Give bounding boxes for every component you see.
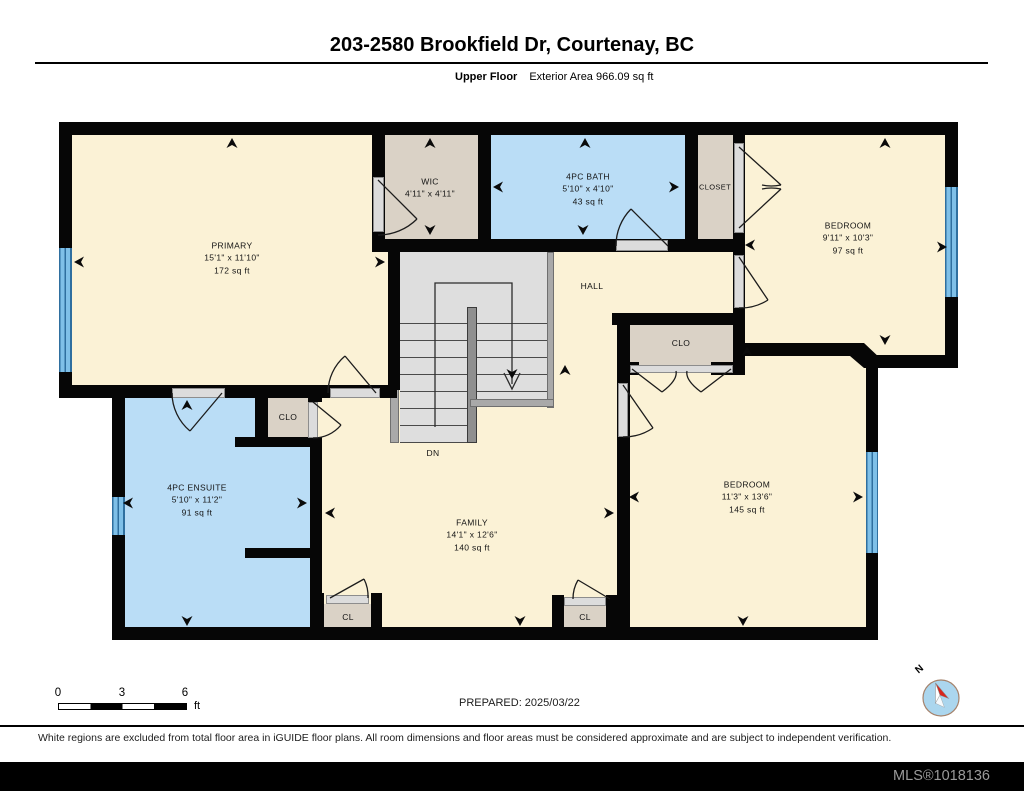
stair-landing — [400, 252, 548, 307]
floor-subtitle: Upper Floor Exterior Area 966.09 sq ft — [455, 71, 653, 83]
door-jamb-ensuite — [172, 388, 225, 398]
stairs-dn-label: DN — [427, 447, 440, 459]
door-jamb-clo-small — [308, 402, 318, 438]
window-bedroom-top — [945, 187, 958, 297]
wall-bedroom-top-divider — [733, 343, 858, 356]
wall-clo-small-bottom — [235, 437, 322, 447]
room-label-cl-right: CL — [579, 611, 591, 623]
scale-unit: ft — [194, 700, 200, 712]
wall-cl-right-b — [606, 595, 618, 640]
stair-rail-bottom — [470, 399, 554, 407]
compass-icon — [921, 678, 961, 718]
wall-wic-bath — [478, 135, 491, 252]
wall-cl-left-b — [371, 593, 382, 640]
room-label-bedroom-top: BEDROOM 9'11" x 10'3" 97 sq ft — [823, 220, 874, 257]
door-jamb-cl-right — [564, 597, 606, 606]
room-label-family: FAMILY 14'1" x 12'6" 140 sq ft — [446, 517, 497, 554]
exterior-area-label: Exterior Area 966.09 sq ft — [529, 71, 653, 83]
scale-bar — [58, 703, 187, 710]
prepared-date: PREPARED: 2025/03/22 — [459, 697, 580, 709]
wall-bath-closet — [685, 135, 698, 252]
door-jamb-bath — [616, 240, 668, 251]
door-jamb-wic — [373, 177, 384, 232]
door-jamb-bedroom-top — [734, 255, 744, 308]
floor-label: Upper Floor — [455, 71, 517, 83]
wall-stair-left — [388, 243, 400, 390]
room-label-ensuite: 4PC ENSUITE 5'10" x 11'2" 91 sq ft — [167, 482, 227, 519]
room-label-cl-left: CL — [342, 611, 354, 623]
door-jamb-primary — [330, 388, 380, 398]
wall-ensuite-stub — [245, 548, 322, 558]
wall-bottom-bedroom — [616, 627, 878, 640]
window-primary — [59, 248, 72, 372]
door-jamb-closet-top — [734, 143, 744, 233]
wall-bottom-ensuite — [112, 627, 322, 640]
stair-rail-right — [547, 252, 554, 408]
stair-divider — [467, 307, 477, 443]
room-label-primary: PRIMARY 15'1" x 11'10" 172 sq ft — [204, 240, 260, 277]
window-bedroom-bottom — [866, 452, 878, 553]
room-label-bath: 4PC BATH 5'10" x 4'10" 43 sq ft — [562, 171, 613, 208]
wall-cl-right-a — [552, 595, 564, 640]
room-label-wic: WIC 4'11" x 4'11" — [405, 176, 455, 201]
room-label-clo-mid: CLO — [672, 337, 691, 349]
room-label-clo-small: CLO — [279, 411, 298, 423]
page-title: 203-2580 Brookfield Dr, Courtenay, BC — [0, 34, 1024, 57]
stair-flight-left — [400, 307, 467, 443]
room-label-bedroom-bottom: BEDROOM 11'3" x 13'6" 145 sq ft — [722, 479, 773, 516]
floor-plan-page: 203-2580 Brookfield Dr, Courtenay, BC Up… — [0, 0, 1024, 791]
door-jamb-bedroom-bottom — [618, 383, 628, 437]
mls-number: MLS®1018136 — [893, 762, 990, 791]
disclaimer-text: White regions are excluded from total fl… — [38, 732, 891, 744]
title-divider — [35, 62, 988, 64]
wall-top — [59, 122, 958, 135]
room-label-hall: HALL — [581, 280, 604, 292]
wall-clo-small-corner — [308, 388, 322, 402]
room-label-closet-top: CLOSET — [699, 183, 731, 194]
stair-flight-right — [477, 307, 547, 400]
footer-divider — [0, 725, 1024, 727]
wall-bottom-family — [308, 627, 630, 640]
wall-cl-left-a — [313, 593, 324, 640]
mls-bar: MLS®1018136 — [0, 762, 1024, 791]
window-ensuite — [112, 497, 125, 535]
compass-north-label: N — [913, 663, 926, 676]
wall-clo-mid-top — [612, 313, 745, 325]
door-jamb-cl-left — [326, 595, 369, 604]
door-jamb-clo-mid — [630, 365, 733, 373]
